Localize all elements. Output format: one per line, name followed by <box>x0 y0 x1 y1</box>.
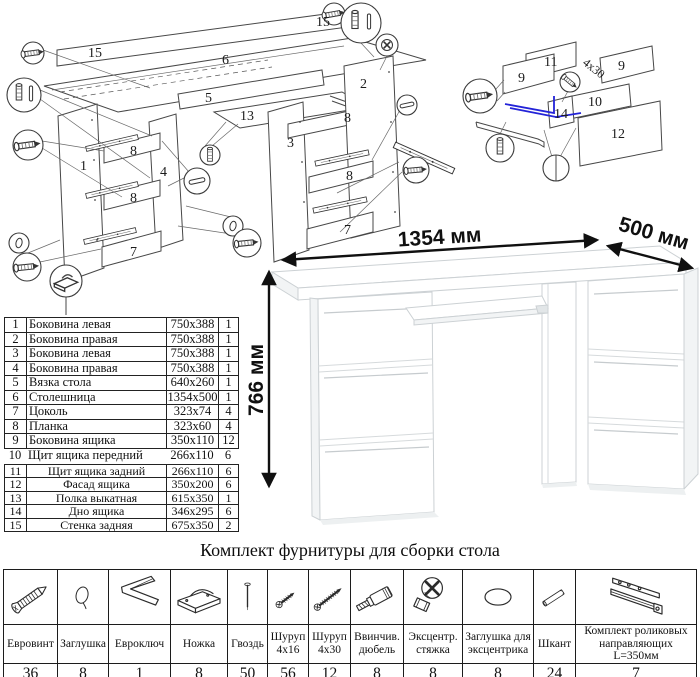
desk-body <box>272 246 698 525</box>
part-name: Вязка стола <box>27 376 167 391</box>
part-number: 8 <box>5 419 27 434</box>
hardware-qty: 8 <box>351 663 404 677</box>
part-name: Боковина левая <box>27 318 167 333</box>
part-size: 323x74 <box>167 405 219 420</box>
part-label: 7 <box>130 245 137 260</box>
part-size: 750x388 <box>167 332 219 347</box>
hardware-name: Шуруп 4x16 <box>268 625 309 664</box>
drawer-exploded-diagram: 9 11 4x30 9 10 14 12 <box>448 18 700 230</box>
part-label: 8 <box>346 169 353 184</box>
parts-row: 5Вязка стола640x2601 <box>5 376 239 391</box>
part-name: Боковина ящика <box>27 434 167 449</box>
parts-row: 9Боковина ящика350x11012 <box>5 434 239 449</box>
hardware-qty: 1 <box>109 663 171 677</box>
part-label: 10 <box>588 95 602 110</box>
part-size: 350x110 <box>167 434 219 449</box>
part-qty: 1 <box>219 318 239 333</box>
part-qty: 6 <box>219 464 239 478</box>
part-label: 9 <box>618 59 625 74</box>
part-label: 8 <box>344 111 351 126</box>
part-qty: 12 <box>219 434 239 449</box>
part-name: Планка <box>27 419 167 434</box>
hardware-qty: 24 <box>534 663 576 677</box>
part-number: 4 <box>5 361 27 376</box>
part-number: 1 <box>5 318 27 333</box>
part-label: 3 <box>287 136 294 151</box>
part-name: Боковина правая <box>27 361 167 376</box>
cam-cap-icon <box>463 571 533 623</box>
callout-circle <box>7 78 41 112</box>
part-qty: 1 <box>219 347 239 362</box>
hardware-qty: 8 <box>58 663 109 677</box>
hardware-name: Шкант <box>534 625 576 664</box>
part-name: Фасад ящика <box>27 478 167 492</box>
part-number: 3 <box>5 347 27 362</box>
hardware-name: Евровинт <box>4 625 58 664</box>
part-number: 11 <box>5 464 27 478</box>
parts-row: 6Столешница1354x5001 <box>5 390 239 405</box>
part-size: 350x200 <box>167 478 219 492</box>
part-size: 675x350 <box>167 518 219 532</box>
screw-short-icon <box>268 571 308 623</box>
part-label: 11 <box>544 55 557 70</box>
height-dimension-label: 766 мм <box>245 344 268 416</box>
part-qty: 1 <box>219 491 239 505</box>
screw-in-dowel-icon <box>351 571 403 623</box>
hardware-name: Евроключ <box>109 625 171 664</box>
hardware-icons-row <box>4 570 697 625</box>
part-label: 8 <box>130 191 137 206</box>
callout-circle <box>341 3 381 43</box>
hardware-name: Ножка <box>171 625 228 664</box>
part-qty: 1 <box>219 390 239 405</box>
parts-row: 7Цоколь323x744 <box>5 405 239 420</box>
pin-icon <box>367 14 370 29</box>
part-size: 750x388 <box>167 361 219 376</box>
part-size: 323x60 <box>167 419 219 434</box>
hardware-name: Заглушка для эксцентрика <box>463 625 534 664</box>
parts-table-middle: 10Щит ящика передний266x1106 <box>4 449 238 464</box>
dowel-icon <box>497 138 503 154</box>
part-qty: 6 <box>219 478 239 492</box>
part-size: 266x110 <box>166 449 218 464</box>
part-qty: 1 <box>219 361 239 376</box>
hex-key-icon <box>109 571 170 623</box>
part-label: 14 <box>554 107 568 122</box>
parts-row: 2Боковина правая750x3881 <box>5 332 239 347</box>
dowel-icon <box>16 84 22 100</box>
confirmat-screw-icon <box>4 571 57 623</box>
part-number: 6 <box>5 390 27 405</box>
part-label: 12 <box>611 127 625 142</box>
hardware-quantities-row: 36 8 1 8 50 56 12 8 8 8 24 7 <box>4 663 697 677</box>
part-name: Боковина правая <box>27 332 167 347</box>
part-name: Дно ящика <box>27 505 167 519</box>
hardware-names-row: Евровинт Заглушка Евроключ Ножка Гвоздь … <box>4 625 697 664</box>
parts-row: 8Планка323x604 <box>5 419 239 434</box>
part-name: Цоколь <box>27 405 167 420</box>
part-size: 750x388 <box>167 318 219 333</box>
part-number: 7 <box>5 405 27 420</box>
part-size: 1354x500 <box>167 390 219 405</box>
part-label: 1 <box>80 159 87 174</box>
part-label: 5 <box>205 91 212 106</box>
part-name: Боковина левая <box>27 347 167 362</box>
pin-icon <box>29 86 32 101</box>
foot-icon <box>171 571 227 623</box>
hardware-name: Шуруп 4x30 <box>309 625 351 664</box>
part-name: Столешница <box>27 390 167 405</box>
part-size: 266x110 <box>167 464 219 478</box>
part-label: 13 <box>240 109 254 124</box>
part-label: 15 <box>316 15 330 30</box>
parts-row: 1Боковина левая750x3881 <box>5 318 239 333</box>
part-size: 640x260 <box>167 376 219 391</box>
hardware-name: Комплект роликовых направляющих L=350мм <box>576 625 697 664</box>
parts-row: 12Фасад ящика350x2006 <box>5 478 239 492</box>
parts-row: 14Дно ящика346x2956 <box>5 505 239 519</box>
parts-row: 10Щит ящика передний266x1106 <box>4 449 238 464</box>
dowel-icon <box>208 147 213 161</box>
hardware-kit-title: Комплект фурнитуры для сборки стола <box>0 540 700 561</box>
hardware-name: Заглушка <box>58 625 109 664</box>
part-number: 12 <box>5 478 27 492</box>
part-qty: 2 <box>219 518 239 532</box>
part-number: 13 <box>5 491 27 505</box>
part-label: 4 <box>160 165 167 180</box>
part-label: 9 <box>518 71 525 86</box>
cap-icon <box>58 571 108 623</box>
part-label: 2 <box>360 77 367 92</box>
part-label: 15 <box>88 46 102 61</box>
part-number: 10 <box>4 449 26 464</box>
hardware-name: Эксцентр. стяжка <box>404 625 463 664</box>
wood-dowel-icon <box>534 571 575 623</box>
parts-list: 1Боковина левая750x3881 2Боковина правая… <box>4 317 238 532</box>
hardware-qty: 36 <box>4 663 58 677</box>
parts-row: 11Щит ящика задний266x1106 <box>5 464 239 478</box>
part-label: 6 <box>222 53 229 68</box>
screw-long-icon <box>309 571 350 623</box>
dowel-icon <box>352 10 358 28</box>
part-name: Щит ящика задний <box>27 464 167 478</box>
hardware-qty: 12 <box>309 663 351 677</box>
part-label: 8 <box>130 144 137 159</box>
part-name: Полка выкатная <box>27 491 167 505</box>
part-number: 15 <box>5 518 27 532</box>
nail-icon <box>228 571 267 623</box>
hardware-qty: 7 <box>576 663 697 677</box>
part-number: 14 <box>5 505 27 519</box>
roller-slides-icon <box>576 571 696 623</box>
hardware-table: Евровинт Заглушка Евроключ Ножка Гвоздь … <box>3 569 697 677</box>
parts-row: 13Полка выкатная615x3501 <box>5 491 239 505</box>
part-number: 2 <box>5 332 27 347</box>
part-qty: 6 <box>218 449 238 464</box>
hardware-qty: 8 <box>404 663 463 677</box>
part-number: 5 <box>5 376 27 391</box>
hardware-qty: 50 <box>228 663 268 677</box>
part-qty: 1 <box>219 376 239 391</box>
hardware-qty: 56 <box>268 663 309 677</box>
part-qty: 6 <box>219 505 239 519</box>
parts-row: 3Боковина левая750x3881 <box>5 347 239 362</box>
hardware-qty: 8 <box>171 663 228 677</box>
cam-lock-icon <box>404 571 462 623</box>
part-qty: 1 <box>219 332 239 347</box>
assembly-instruction-sheet: 15 6 15 1 8 4 8 7 5 13 3 2 8 8 7 <box>0 0 700 677</box>
part-size: 346x295 <box>167 505 219 519</box>
hardware-name: Гвоздь <box>228 625 268 664</box>
part-size: 750x388 <box>167 347 219 362</box>
part-name: Щит ящика передний <box>26 449 166 464</box>
desk-render: 1354 мм 500 мм 766 мм <box>256 214 700 542</box>
parts-table-lower: 11Щит ящика задний266x1106 12Фасад ящика… <box>4 464 239 533</box>
part-name: Стенка задняя <box>27 518 167 532</box>
cam-lock-icon <box>382 40 393 51</box>
part-qty: 4 <box>219 419 239 434</box>
parts-row: 4Боковина правая750x3881 <box>5 361 239 376</box>
part-qty: 4 <box>219 405 239 420</box>
part-number: 9 <box>5 434 27 449</box>
hardware-qty: 8 <box>463 663 534 677</box>
parts-table-upper: 1Боковина левая750x3881 2Боковина правая… <box>4 317 239 449</box>
parts-row: 15Стенка задняя675x3502 <box>5 518 239 532</box>
hardware-name: Ввинчив. дюбель <box>351 625 404 664</box>
part-size: 615x350 <box>167 491 219 505</box>
